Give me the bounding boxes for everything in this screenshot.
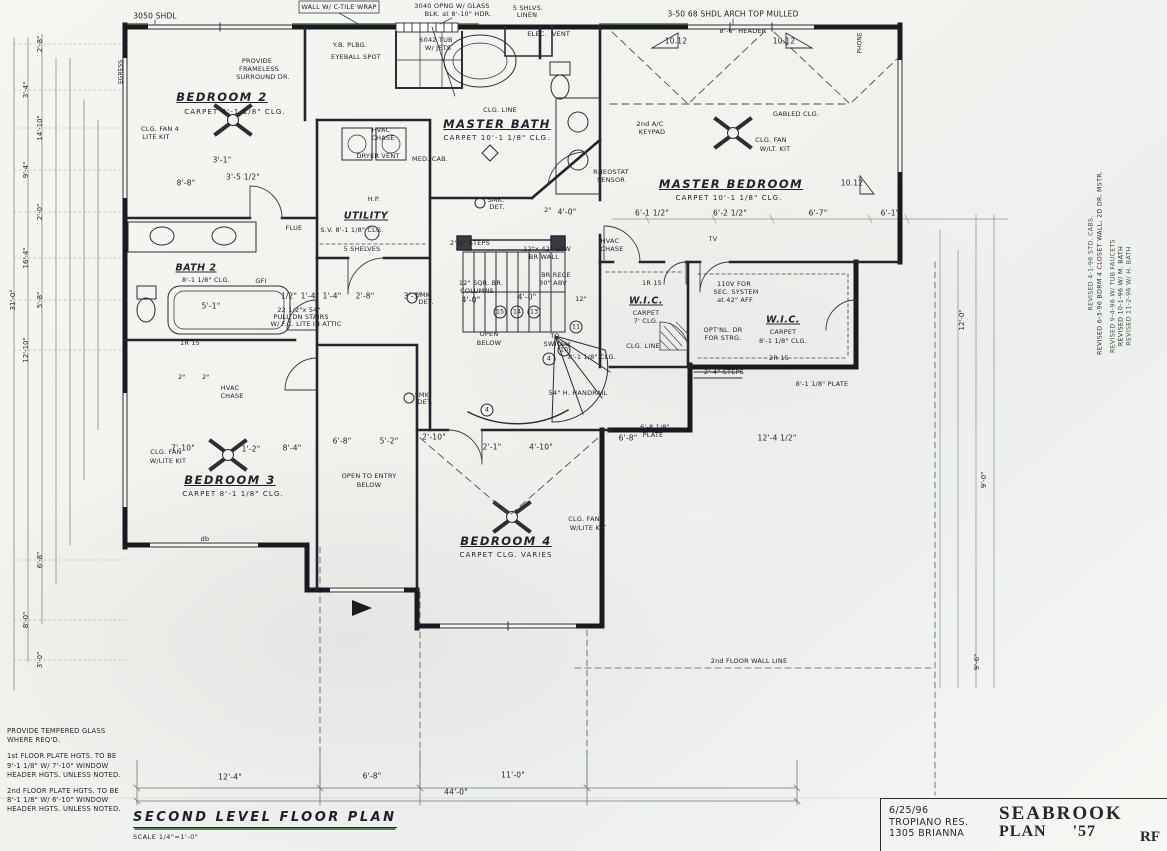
plan-label: CLG. LINE: [626, 342, 660, 350]
plan-label: 5'-1": [202, 302, 221, 311]
room-label: BATH 2: [175, 263, 216, 274]
plan-label: 4: [481, 404, 494, 417]
room-label: MASTER BEDROOM: [659, 177, 803, 191]
plan-label: 10.12: [773, 37, 795, 46]
drawing-title-block: SECOND LEVEL FLOOR PLAN SCALE 1/4"=1'-0": [133, 810, 397, 841]
plan-label: BELOW: [357, 481, 382, 489]
plan-label: SURROUND DR.: [236, 73, 289, 81]
plan-label: HVAC: [601, 237, 620, 245]
plan-label: 2°: [178, 373, 186, 381]
plan-label: CHASE: [371, 134, 394, 142]
plan-label: 30" ABV: [539, 279, 567, 287]
plan-label: 2°: [202, 373, 210, 381]
plan-label: 1R 15: [642, 279, 662, 287]
plan-label: 2'-4" STEPS: [704, 368, 744, 376]
plan-label: EYEBALL SPOT: [331, 53, 381, 61]
room-label: W.I.C.: [766, 315, 800, 326]
plan-label: CARPET 10'-1 1/8" CLG.: [443, 134, 550, 142]
plan-label: LINEN: [517, 11, 537, 19]
revision-note: REVISED 11-2-96 W/ H. BATH: [1126, 246, 1133, 345]
plan-label: OPT'NL. DR: [704, 326, 743, 334]
plan-label: 6'-1 1/2": [635, 209, 669, 218]
plan-label: CARPET 10'-1 1/8" CLG.: [675, 194, 782, 202]
plan-label: 12'-4 1/2": [758, 434, 797, 443]
plan-label: KEYPAD: [639, 128, 666, 136]
plan-label: H.P.: [368, 195, 381, 203]
plan-label: BR RECE: [541, 271, 571, 279]
plan-label: db: [201, 535, 210, 543]
plan-label: 11: [570, 321, 583, 334]
plan-label: FRAMELESS: [239, 65, 279, 73]
plan-label: WALL W/ C-TILE WRAP: [301, 3, 376, 11]
plan-label: 8'-6" HEADER: [720, 27, 767, 35]
drawing-title: SECOND LEVEL FLOOR PLAN: [133, 810, 397, 828]
general-note: 1st FLOOR PLATE HGTS. TO BE 9'-1 1/8" W/…: [7, 752, 129, 780]
revision-note: REVISED 4-1-96 STD. CABS.: [1088, 215, 1095, 310]
plan-label: 6'-8": [363, 772, 382, 781]
room-label: BEDROOM 4: [460, 534, 552, 548]
plan-label: 4'-0": [462, 296, 481, 305]
title-block-client: TROPIANO RES.: [889, 817, 968, 829]
title-block-date: 6/25/96: [889, 805, 968, 817]
plan-label: 2nd A/C: [636, 120, 663, 128]
plan-label: RHEOSTAT: [593, 168, 629, 176]
plan-label: 6'-8": [619, 434, 638, 443]
plan-label: 15: [494, 306, 507, 319]
plan-label: LITE KIT: [142, 133, 169, 141]
plan-label: BLK. at 8'-10" HDR.: [425, 10, 492, 18]
plan-label: 4'-0": [558, 208, 577, 217]
plan-label: 3'-5 1/2": [226, 173, 260, 182]
plan-label: 12'-0": [958, 309, 966, 330]
plan-label: 12" SQR. BR.: [459, 279, 503, 287]
plan-label: 6'-8": [36, 552, 44, 569]
plan-label: 6'-8": [333, 437, 352, 446]
plan-label: 6'-2 1/2": [713, 209, 747, 218]
plan-label: 8'-1 1/8" PLATE: [796, 380, 849, 388]
plan-label: CLG. FAN: [568, 515, 599, 523]
plan-label: 8'-4": [283, 444, 302, 453]
plan-label: BR WALL: [529, 253, 559, 261]
plan-label: GFI: [255, 277, 266, 285]
plan-label: VENT: [552, 30, 570, 38]
plan-label: 5'-2": [380, 437, 399, 446]
plan-label: 2'-0": [36, 204, 44, 221]
plan-label: COLUMNS: [460, 287, 494, 295]
plan-label: TV: [709, 235, 718, 243]
plan-label: 5'-8": [36, 292, 44, 309]
plan-label: 6'-8 1/8": [640, 423, 670, 431]
plan-label: 110V FOR: [717, 280, 751, 288]
plan-label: 4'-0": [518, 293, 537, 302]
plan-label: 10.12: [665, 37, 687, 46]
plan-label: 2°: [544, 206, 552, 214]
plan-label: SEC. SYSTEM: [713, 288, 758, 296]
room-label: UTILITY: [344, 211, 388, 222]
plan-label: 6'-1": [881, 209, 900, 218]
plan-label: 3'-1": [213, 156, 232, 165]
general-note: 2nd FLOOR PLATE HGTS. TO BE 8'-1 1/8" W/…: [7, 787, 129, 815]
plan-label: 12'-10": [22, 337, 30, 362]
plan-label: 1R 15: [180, 339, 200, 347]
plan-label: 4'-10": [529, 443, 553, 452]
plan-label: 10.12: [841, 179, 863, 188]
plan-label: 1'-2": [242, 445, 261, 454]
plan-label: DET.: [489, 203, 504, 211]
plan-label: W/ F.C. LITE IN ATTIC: [270, 320, 341, 328]
plan-label: W/LITE KIT: [150, 457, 186, 465]
plan-label: 16'-4": [22, 247, 30, 268]
plan-label: 54" H. HANDRAIL: [549, 389, 608, 397]
plan-label: TO: [550, 332, 560, 340]
plan-label: 3'-0": [36, 652, 44, 669]
plan-label: DET.: [417, 398, 432, 406]
plan-label: 6042 TUB: [419, 36, 452, 44]
plan-label: 8'-1 1/8" CLG.: [568, 353, 616, 361]
plan-label: BELOW: [477, 339, 502, 347]
plan-label: 12'-4": [218, 773, 242, 782]
plan-label: CHASE: [600, 245, 623, 253]
plan-label: 9'-6": [973, 654, 981, 671]
plan-label: HVAC: [372, 126, 391, 134]
plan-label: 5 SHELVES: [344, 245, 381, 253]
plan-label: 6'-7": [809, 209, 828, 218]
plan-label: OPEN: [480, 330, 499, 338]
plan-label: 12": [575, 295, 587, 303]
plan-label: W/LITE KIT: [570, 524, 606, 532]
room-label: BEDROOM 2: [176, 90, 268, 104]
plan-label: CARPET 8'-1 1/8" CLG.: [182, 490, 284, 498]
plan-label: 1'-4": [301, 292, 320, 301]
plan-label: 9'-0": [980, 472, 988, 489]
plan-label: PHONE: [857, 32, 864, 53]
plan-label: CLG. LINE: [483, 106, 517, 114]
plan-label: CHASE: [220, 392, 243, 400]
plan-label: 2'-8": [36, 36, 44, 53]
drafter-initials: RF: [1140, 829, 1160, 846]
plan-label: 2R 15: [769, 354, 789, 362]
room-label: BEDROOM 3: [184, 473, 276, 487]
general-note: PROVIDE TEMPERED GLASS WHERE REQ'D.: [7, 727, 129, 745]
room-label: MASTER BATH: [443, 117, 551, 131]
plan-label: 7' CLG.: [634, 317, 659, 325]
plan-label: 2'-4" STEPS: [450, 239, 490, 247]
plan-label: 3'-4": [22, 82, 30, 99]
plan-label: 2'-8": [356, 292, 375, 301]
revision-note: REVISED 6-3-96 BDRM 4 CLOSET WALL, 2D DR…: [1097, 171, 1104, 355]
plan-label: W/ JETS: [425, 44, 451, 52]
plan-label: 8'-8": [177, 179, 196, 188]
plan-label: 1/2": [281, 292, 297, 301]
plan-label: MED. CAB.: [412, 155, 448, 163]
plan-label: 2'-1": [483, 443, 502, 452]
plan-label: 2'-10": [422, 433, 446, 442]
plan-label: 3-50 68 SHDL ARCH TOP MULLED: [667, 10, 798, 19]
plan-label: 4: [543, 353, 556, 366]
plan-label: 12"x 42" LOW: [523, 245, 571, 253]
plan-label: 7'-10": [171, 444, 195, 453]
plan-label: EGRESS: [118, 60, 125, 84]
plan-label: S.V. 8'-1 1/8" CLG.: [321, 226, 384, 234]
revision-note: REVISED 10-1-96 W/ M. BATH: [1118, 246, 1125, 346]
plan-label: CLG. FAN: [755, 136, 786, 144]
plan-label: W/LT. KIT: [760, 145, 791, 153]
plan-label: 44'-0": [444, 788, 468, 797]
plan-label: 13: [528, 306, 541, 319]
plan-label: 3050 SHDL: [133, 12, 177, 21]
plan-label: FOR STRG.: [705, 334, 742, 342]
plan-label: CLG. FAN 4: [141, 125, 179, 133]
plan-label: ELEC.: [527, 30, 546, 38]
plan-label: 3'-1": [404, 292, 423, 301]
plan-label: 11'-0": [501, 771, 525, 780]
plan-label: Y.B. PLBG.: [333, 41, 367, 49]
plan-label: SENSOR: [597, 176, 625, 184]
plan-label: 8'-1 1/8" CLG.: [759, 337, 807, 345]
general-notes: PROVIDE TEMPERED GLASS WHERE REQ'D.1st F…: [7, 727, 129, 821]
plan-label: at 42" AFF: [717, 296, 753, 304]
plan-label: FLUE: [286, 224, 303, 232]
plan-label: 1'-4": [323, 292, 342, 301]
plan-label: 2nd FLOOR WALL LINE: [711, 657, 788, 665]
plan-label: CARPET CLG. VARIES: [459, 551, 552, 559]
plan-label: CARPET 8'-1 1/8" CLG.: [184, 108, 286, 116]
drawing-scale: SCALE 1/4"=1'-0": [133, 833, 397, 841]
plan-name: SEABROOK: [999, 803, 1123, 825]
plan-label: GABLED CLG.: [773, 110, 819, 118]
plan-label: PROVIDE: [242, 57, 272, 65]
plan-number: '57: [1073, 823, 1096, 841]
plan-label: DRYER VENT: [356, 152, 399, 160]
plan-label: 8'-1 1/8" CLG.: [182, 276, 230, 284]
revision-note: REVISED 9-4-96 W/ TUB FAUCETS: [1110, 239, 1117, 353]
plan-label: 9'-4": [22, 162, 30, 179]
plan-label: 14: [511, 306, 524, 319]
plan-label: 31'-0": [9, 289, 17, 310]
title-block: 6/25/96 TROPIANO RES. 1305 BRIANNA SEABR…: [880, 798, 1167, 851]
plan-label: PLATE: [643, 431, 664, 439]
plan-label: 8'-0": [22, 612, 30, 629]
room-label: W.I.C.: [629, 296, 663, 307]
plan-label: HVAC: [221, 384, 240, 392]
plan-label: 3040 OPNG W/ GLASS: [414, 2, 489, 10]
floor-plan-sheet: BEDROOM 2CARPET 8'-1 1/8" CLG.CLG. FAN 4…: [0, 0, 1167, 851]
title-block-address: 1305 BRIANNA: [889, 828, 968, 840]
plan-word: PLAN: [999, 823, 1047, 841]
plan-label: OPEN TO ENTRY: [342, 472, 397, 480]
plan-label: 14'-10": [36, 115, 44, 140]
plan-label: CARPET: [770, 328, 797, 336]
plan-label: CARPET: [633, 309, 660, 317]
